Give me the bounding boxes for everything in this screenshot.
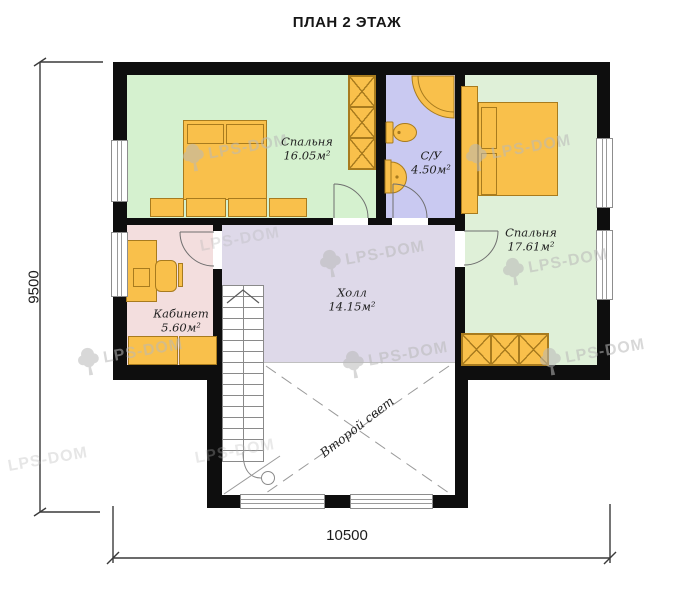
page-title: ПЛАН 2 ЭТАЖ	[293, 14, 401, 31]
brand-watermark-text: LPS-DOM	[102, 336, 185, 368]
wardrobe-bedroom-1	[348, 75, 376, 170]
tree-icon	[462, 139, 491, 175]
brand-watermark-text: LPS-DOM	[367, 339, 450, 371]
brand-watermark-text: LPS-DOM	[207, 132, 290, 164]
brand-watermark-text: LPS-DOM	[7, 444, 90, 476]
tree-icon	[179, 139, 208, 175]
tree-icon	[536, 343, 565, 379]
brand-watermark-text: LPS-DOM	[344, 238, 427, 270]
room-area: 5.60м²	[153, 321, 208, 335]
room-label-study: Кабинет 5.60м²	[153, 307, 208, 336]
room-area: 4.50м²	[411, 163, 451, 177]
window-void-bottom-1	[240, 494, 325, 509]
door-opening-bedroom-2	[455, 231, 465, 267]
room-label-bedroom-2: Спальня 17.61м²	[505, 226, 557, 255]
wardrobe-cell	[491, 334, 520, 365]
room-name: Спальня	[505, 226, 557, 240]
brand-watermark: LPS-DOM	[7, 444, 90, 476]
window-bedroom-1-left	[111, 140, 128, 202]
monitor	[133, 268, 150, 287]
tree-icon	[499, 253, 528, 289]
tree-icon	[316, 245, 345, 281]
wardrobe-cell	[349, 107, 375, 138]
floor-plan: ПЛАН 2 ЭТАЖ	[0, 0, 700, 600]
window-bedroom-2-right-1	[596, 138, 613, 208]
room-label-bedroom-1: Спальня 16.05м²	[281, 135, 333, 164]
room-name: Холл	[328, 286, 375, 300]
wardrobe-cell	[349, 138, 375, 169]
office-chair	[155, 260, 177, 292]
tree-icon	[339, 346, 368, 382]
room-area: 16.05м²	[281, 149, 333, 163]
dimension-value-bottom: 10500	[326, 527, 368, 544]
room-name: С/У	[411, 149, 451, 163]
room-bathroom	[386, 75, 455, 218]
door-opening-bathroom	[392, 218, 428, 225]
bedroom-1-cabinet-1	[150, 198, 184, 217]
room-name: Кабинет	[153, 307, 208, 321]
wardrobe-cell	[462, 334, 491, 365]
study-cabinet-2	[179, 336, 217, 365]
window-study-left	[111, 232, 128, 297]
door-opening-bedroom-1	[333, 218, 368, 225]
room-label-hall: Холл 14.15м²	[328, 286, 375, 315]
room-area: 14.15м²	[328, 300, 375, 314]
brand-watermark-text: LPS-DOM	[490, 132, 573, 164]
dimension-value-left: 9500	[26, 270, 43, 303]
room-name: Спальня	[281, 135, 333, 149]
stairs	[222, 285, 264, 462]
brand-watermark-text: LPS-DOM	[564, 336, 647, 368]
bedroom-1-cabinet-2	[186, 198, 226, 217]
bedroom-1-cabinet-3	[228, 198, 267, 217]
room-label-bathroom: С/У 4.50м²	[411, 149, 451, 178]
room-area: 17.61м²	[505, 240, 557, 254]
wardrobe-cell	[349, 76, 375, 107]
window-void-bottom-2	[350, 494, 433, 509]
bedroom-1-cabinet-4	[269, 198, 307, 217]
tree-icon	[74, 343, 103, 379]
desk-side-panel	[178, 263, 183, 287]
